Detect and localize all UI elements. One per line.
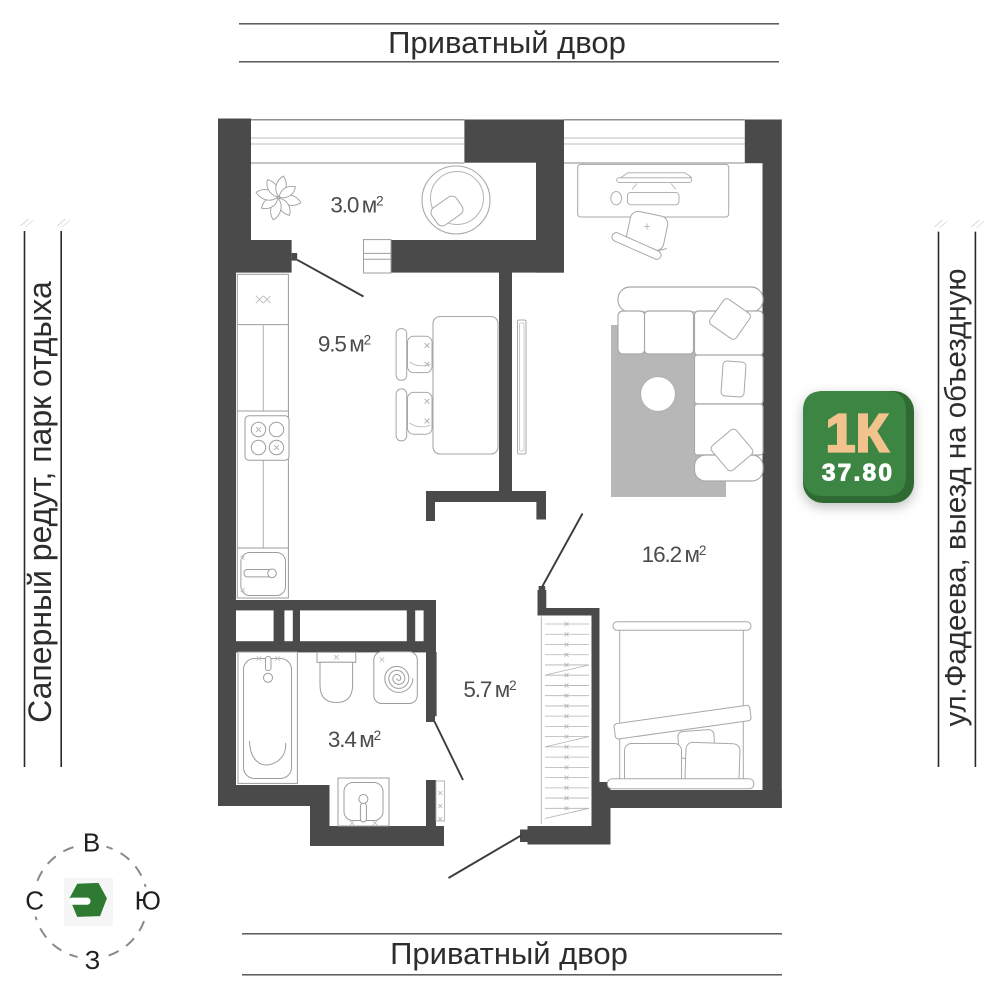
svg-text:Приватный двор: Приватный двор: [390, 936, 628, 971]
svg-text:3.4 м2: 3.4 м2: [328, 727, 381, 752]
svg-text:9.5 м2: 9.5 м2: [318, 332, 371, 357]
svg-text:В: В: [83, 828, 100, 858]
svg-text:Ю: Ю: [135, 886, 161, 916]
svg-text:Приватный двор: Приватный двор: [388, 25, 626, 60]
svg-text:3.0 м2: 3.0 м2: [330, 193, 383, 218]
svg-text:5.7 м2: 5.7 м2: [463, 677, 516, 702]
svg-text:З: З: [85, 945, 101, 975]
svg-text:1К: 1К: [826, 404, 890, 464]
svg-text:16.2 м2: 16.2 м2: [642, 542, 707, 567]
svg-text:37.80: 37.80: [822, 460, 894, 487]
svg-text:ул.Фадеева, выезд на объездную: ул.Фадеева, выезд на объездную: [940, 268, 973, 726]
svg-text:Саперный редут, парк отдыха: Саперный редут, парк отдыха: [22, 281, 58, 723]
svg-text:С: С: [25, 886, 44, 916]
